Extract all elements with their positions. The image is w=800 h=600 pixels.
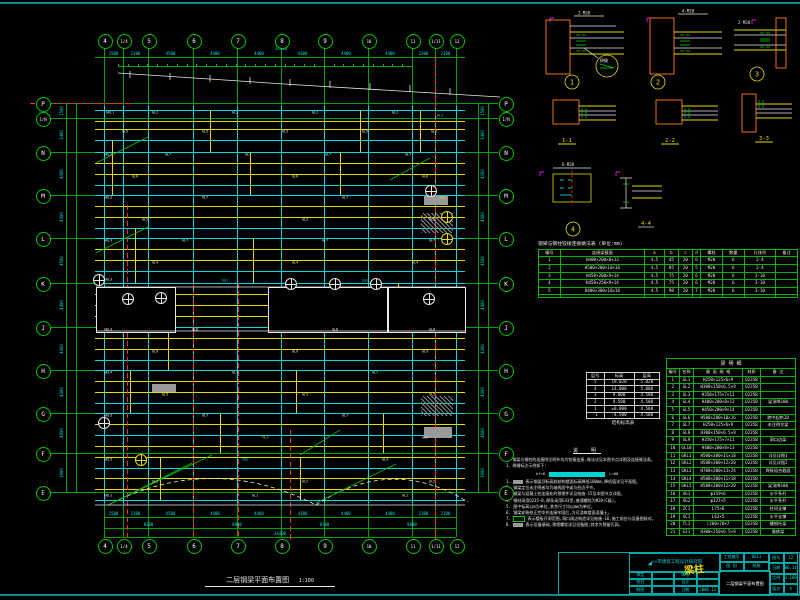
beam-label: GKL2	[104, 196, 112, 200]
titleblock-cell: 图号	[769, 553, 784, 563]
table-cell: 17	[667, 498, 680, 506]
dimension-tick	[206, 64, 207, 67]
column-header: 层高	[634, 373, 659, 380]
titleblock-cell: 日期	[674, 586, 697, 594]
table-cell: 2-4	[744, 264, 776, 272]
dimension-tick	[383, 64, 384, 67]
table-cell: GL9	[679, 437, 694, 445]
beam-label: GL6	[132, 175, 138, 179]
dimension-tick	[226, 64, 227, 67]
member-row: 21GJ1H300×150×6.5×9Q235B悬挑梁	[667, 528, 796, 536]
dimension-text: 4300	[481, 344, 485, 354]
beam-label: GL7	[342, 414, 348, 418]
beam-label: GKL3	[104, 278, 112, 282]
table-cell	[761, 407, 796, 415]
axis-line-horizontal	[50, 453, 498, 454]
titleblock-row: 图 别结施	[719, 562, 769, 571]
company-cell: ◢ ××市建筑工程设计研究院	[629, 553, 721, 573]
dimension-text: 4400	[254, 512, 264, 516]
connection-row	[539, 295, 798, 298]
equipment-pad	[152, 384, 176, 392]
titleblock-row: 审定审核	[629, 571, 719, 579]
table-cell: 6	[692, 272, 700, 280]
table-cell: GL2	[679, 384, 694, 392]
table-cell: Q235B	[742, 475, 760, 483]
titleblock-row: 校对设计	[629, 579, 719, 587]
grid-bubble: 6	[187, 34, 202, 49]
grid-bubble: N	[499, 146, 514, 161]
table-cell: 6	[667, 414, 680, 422]
beam-label: TL1	[262, 436, 268, 440]
table-cell: φ127×5	[694, 498, 743, 506]
table-cell: 焊接组合截面	[761, 467, 796, 475]
table-cell	[776, 257, 798, 265]
beam-label: GL9	[292, 350, 298, 354]
symbol-cross	[141, 455, 142, 465]
dimension-tick	[245, 64, 246, 67]
table-cell	[701, 295, 723, 298]
dimension-text: 1500	[109, 512, 119, 516]
grid-bubble: 10	[362, 539, 377, 554]
dimension-tick	[167, 64, 168, 67]
table-cell: Q235B	[742, 521, 760, 529]
grid-bubble: F	[499, 447, 514, 462]
level-row: 24.5004.500	[587, 399, 660, 406]
beam-label: GL5	[429, 393, 435, 397]
table-cell: 1	[667, 376, 680, 384]
beam-label: GL8	[192, 328, 198, 332]
beam-line	[95, 121, 465, 122]
titleblock-cell: 结施	[744, 562, 769, 571]
titleblock-right-cells: 图号12日期06.11比例1:100版次A	[769, 553, 798, 594]
beam-line	[95, 338, 465, 339]
dimension-line	[66, 103, 67, 492]
table-cell: 75	[664, 280, 678, 288]
grid-bubble: G	[36, 407, 51, 422]
beam-line-vertical	[253, 238, 254, 283]
member-table-block: 梁 明 细 编号名称截 面 规 格材质备 注1GL1H250×125×6×9Q2…	[666, 358, 796, 536]
dimension-text: 4400	[481, 300, 485, 310]
beam-label: GKL1	[106, 111, 114, 115]
column-header: 螺栓	[701, 249, 723, 257]
note-intro-line: 2、焊缝标注示例如下:	[506, 463, 668, 469]
dimension-text: 4400	[341, 512, 351, 516]
table-cell: 3-10	[744, 280, 776, 288]
beam-line	[95, 500, 465, 501]
beam-line-vertical	[135, 228, 136, 283]
hatch-zone	[421, 396, 453, 416]
drain-symbol	[425, 185, 437, 197]
dimension-text: 4300	[298, 52, 308, 56]
beam-line	[95, 349, 465, 350]
table-cell: 45	[664, 257, 678, 265]
beam-label: GL2	[232, 111, 238, 115]
dimension-text: 1500	[60, 106, 64, 116]
table-cell: H588×300×12×20	[694, 483, 743, 491]
beam-label: GL4	[292, 261, 298, 265]
table-cell: 2	[667, 384, 680, 392]
table-cell: Q235B	[742, 498, 760, 506]
table-cell: 8	[667, 429, 680, 437]
table-cell: 13	[667, 467, 680, 475]
drain-symbol	[122, 293, 134, 305]
table-cell: 5	[539, 287, 561, 295]
table-cell: Q235B	[742, 483, 760, 491]
beam-label: XG1	[222, 279, 228, 283]
beam-label: GL5	[429, 218, 435, 222]
dimension-line	[76, 103, 77, 492]
notes-block: 说 明 1、钢梁与钢柱的连接除注明外均为铰接连接,做法详见本图节点详图及连接做法…	[506, 448, 668, 529]
beam-label: GL2	[152, 480, 158, 484]
grid-bubble: K	[499, 277, 514, 292]
titleblock-cell: 06.11	[784, 563, 799, 573]
level-row: -1-4.5004.500	[587, 412, 660, 419]
dimension-text: 4400	[254, 52, 264, 56]
dimension-text: 4300	[60, 387, 64, 397]
table-cell	[776, 272, 798, 280]
expansion-joint-axis	[238, 283, 239, 540]
beam-label: GL7	[342, 196, 348, 200]
grid-bubble: 8	[275, 34, 290, 49]
table-cell: H400×200×8×13	[694, 399, 743, 407]
table-cell: 90	[664, 287, 678, 295]
dimension-text: 34400	[274, 532, 286, 536]
drain-symbol	[423, 293, 435, 305]
plan-title-text: 二层钢梁平面布置图	[226, 576, 289, 584]
dimension-tick	[265, 64, 266, 67]
table-cell: M20	[701, 264, 723, 272]
dimension-text: 1500	[481, 106, 485, 116]
dimension-tick	[363, 64, 364, 67]
table-cell: 21	[667, 528, 680, 536]
grid-bubble: 1/11	[429, 34, 444, 49]
beam-line	[95, 195, 465, 196]
member-row: 20TL1[200×70×7Q235B槽钢托梁	[667, 521, 796, 529]
beam-label: GKL5	[104, 414, 112, 418]
grid-bubble: 7	[231, 539, 246, 554]
dimension-text: 4300	[298, 512, 308, 516]
dimension-text: 1500	[109, 52, 119, 56]
beam-line	[95, 260, 465, 261]
table-cell: 20	[678, 264, 692, 272]
table-cell: XG2	[679, 498, 694, 506]
beam-label: GL7	[202, 196, 208, 200]
dimension-text: 4400	[385, 52, 395, 56]
dimension-tick	[353, 64, 354, 67]
titleblock-cell: 2006.11	[697, 586, 720, 594]
titleblock-cell: A	[784, 584, 799, 594]
symbol-cross	[447, 212, 448, 222]
beam-line	[95, 174, 465, 175]
beam-label: GL2	[152, 111, 158, 115]
table-cell: 水平支撑	[761, 513, 796, 521]
beam-label: GL7	[405, 153, 411, 157]
table-cell: 6	[722, 264, 744, 272]
dimension-line	[488, 103, 489, 492]
table-cell: L75×6	[694, 505, 743, 513]
grid-bubble: 1/11	[429, 539, 444, 554]
plan-title: 二层钢梁平面布置图 1:100	[205, 567, 335, 587]
table-cell: GKL3	[679, 467, 694, 475]
table-cell: 6	[692, 257, 700, 265]
table-cell: Q235B	[742, 467, 760, 475]
symbol-cross	[99, 275, 100, 285]
table-cell: H400×200×8×13	[694, 445, 743, 453]
symbol-cross	[335, 279, 336, 289]
table-cell: 5.020	[634, 379, 659, 386]
titleblock-row: 比例1:100	[769, 574, 798, 584]
table-cell: GL8	[679, 429, 694, 437]
table-cell: 详见详图2	[761, 460, 796, 468]
beam-line	[95, 478, 465, 479]
dimension-text: 3400	[60, 130, 64, 140]
table-cell: Q235B	[742, 528, 760, 536]
grid-bubble: 12	[450, 34, 465, 49]
table-cell: Q235B	[742, 452, 760, 460]
column-header: b	[664, 249, 678, 257]
beam-label: GL7	[232, 371, 238, 375]
grid-bubble: 12	[450, 539, 465, 554]
beam-label: GL6	[422, 175, 428, 179]
table-cell: 16	[667, 490, 680, 498]
table-cell: Q235B	[742, 460, 760, 468]
table-cell: 5	[587, 379, 605, 386]
beam-line-vertical	[250, 152, 251, 195]
grid-bubble: F	[36, 447, 51, 462]
notes-header: 说 明	[506, 448, 668, 456]
titleblock-row: 版次A	[769, 584, 798, 594]
table-cell: Q235B	[742, 513, 760, 521]
symbol-cross	[376, 279, 377, 289]
table-cell	[692, 295, 700, 298]
dimension-tick	[128, 64, 129, 67]
dimension-text: 4400	[385, 512, 395, 516]
beam-label: GL7	[322, 239, 328, 243]
table-cell: Q235B	[742, 445, 760, 453]
beam-line	[95, 424, 465, 425]
beam-label: GL3	[431, 130, 437, 134]
beam-label: GL5	[302, 218, 308, 222]
titleblock-row: 工程编号0611	[719, 553, 769, 562]
dimension-tick	[314, 64, 315, 67]
dimension-tick	[157, 64, 158, 67]
column-header: 截 面 规 格	[694, 369, 743, 377]
table-cell	[776, 287, 798, 295]
titleblock-cell: 12	[784, 553, 799, 563]
table-cell: 20	[678, 257, 692, 265]
table-cell: [200×70×7	[694, 521, 743, 529]
beam-line	[95, 446, 465, 447]
table-cell	[761, 391, 796, 399]
beam-line-vertical	[340, 152, 341, 195]
grid-bubble: N	[36, 146, 51, 161]
beam-label: GL7	[165, 153, 171, 157]
grid-bubble: P	[499, 97, 514, 112]
table-cell: 柱间支撑	[761, 505, 796, 513]
dimension-text: 4300	[481, 212, 485, 222]
title-block: ◢ ××市建筑工程设计研究院 审定审核校对设计制图日期2006.11 工程编号0…	[558, 552, 800, 595]
beam-label: GL6	[292, 175, 298, 179]
table-cell: 1	[587, 406, 605, 413]
table-cell	[744, 295, 776, 298]
symbol-cross	[161, 293, 162, 303]
axis-line-horizontal	[50, 118, 498, 119]
beam-label: XG2	[242, 458, 248, 462]
grid-bubble: 5	[142, 539, 157, 554]
connection-row: 5H400×300×10×164.590207M2063-10	[539, 287, 798, 295]
table-cell	[761, 376, 796, 384]
table-cell: 梁顶降100	[761, 483, 796, 491]
symbol-cross	[447, 234, 448, 244]
table-cell	[560, 295, 644, 298]
table-cell: 4.500	[634, 406, 659, 413]
dimension-text: 4500	[166, 512, 176, 516]
table-cell: M20	[701, 257, 723, 265]
beam-line	[95, 271, 465, 272]
level-table-block: 层号标高层高519.0205.020414.0005.00039.0004.50…	[586, 372, 660, 426]
dimension-tick	[343, 64, 344, 67]
table-cell: 14	[667, 475, 680, 483]
titleblock-cell	[652, 571, 675, 579]
beam-label: GL5	[202, 130, 208, 134]
dimension-text: 4400	[60, 300, 64, 310]
connection-row: 2H500×200×10×164.585205M2062-4	[539, 264, 798, 272]
titleblock-cell: 日期	[769, 563, 784, 573]
beam-line	[95, 403, 465, 404]
table-cell: 3-10	[744, 287, 776, 295]
level-row: 519.0205.020	[587, 379, 660, 386]
grid-bubble: 1/4	[117, 34, 132, 49]
column-header: 连接梁截面	[560, 249, 644, 257]
table-cell: 18	[667, 505, 680, 513]
grid-bubble: E	[36, 486, 51, 501]
member-row: 6GL6H500×200×10×16Q235B跨中起拱20	[667, 414, 796, 422]
table-cell: GL6	[679, 414, 694, 422]
table-cell: Q235B	[742, 429, 760, 437]
expansion-joint-axis	[193, 283, 194, 540]
table-cell: 4.5	[644, 272, 664, 280]
dimension-tick	[216, 64, 217, 67]
grid-bubble: 8	[275, 539, 290, 554]
beam-line	[95, 249, 465, 250]
connection-table-title: 钢梁与钢柱铰接连接做法表 (单位:mm)	[538, 242, 798, 248]
grid-bubble: 10	[362, 34, 377, 49]
approval-stamp: 梁柱	[683, 560, 704, 577]
titleblock-cell: 设计	[674, 579, 697, 587]
table-cell: 槽钢托梁	[761, 521, 796, 529]
table-cell: 洞口边梁	[761, 437, 796, 445]
member-row: 3GL3H350×175×7×11Q235B	[667, 391, 796, 399]
beam-line	[95, 435, 465, 436]
symbol-cross	[104, 418, 105, 428]
table-cell: Q235B	[742, 505, 760, 513]
drain-symbol	[285, 278, 297, 290]
dimension-text: 4300	[60, 212, 64, 222]
member-row: 12GKL2H588×300×12×20Q235B详见详图2	[667, 460, 796, 468]
table-cell: 4.5	[644, 280, 664, 288]
dimension-text: 2100	[441, 512, 451, 516]
table-cell: 10	[667, 445, 680, 453]
dimension-tick	[255, 64, 256, 67]
titleblock-cell	[697, 579, 720, 587]
table-cell: 19	[667, 513, 680, 521]
signature-grid: 审定审核校对设计制图日期2006.11	[629, 571, 719, 594]
grid-bubble: G	[499, 407, 514, 422]
titleblock-row: 制图日期2006.11	[629, 586, 719, 594]
table-cell: H250×125×6×9	[694, 422, 743, 430]
table-cell: 4.500	[634, 392, 659, 399]
grid-bubble: 1/N	[36, 112, 51, 127]
beam-label: GL5	[162, 393, 168, 397]
table-cell: H300×150×6.5×9	[694, 429, 743, 437]
column-header: 编号	[539, 249, 561, 257]
beam-label: GL5	[142, 218, 148, 222]
table-cell	[678, 295, 692, 298]
beam-line-vertical	[220, 413, 221, 453]
beam-label: GL8	[429, 328, 435, 332]
table-cell: M20	[701, 287, 723, 295]
table-cell: Q235B	[742, 384, 760, 392]
grid-bubble: 4	[98, 34, 113, 49]
column-header: 孔排列	[744, 249, 776, 257]
table-cell: GL1	[679, 376, 694, 384]
beam-label: GL4	[412, 261, 418, 265]
dimension-tick	[285, 64, 286, 67]
beam-label: GL2	[302, 480, 308, 484]
drain-symbol	[135, 454, 147, 466]
dimension-text: 4500	[166, 52, 176, 56]
table-cell: H500×300×11×18	[694, 452, 743, 460]
dimension-text: 2100	[131, 52, 141, 56]
table-cell: 3	[539, 272, 561, 280]
dimension-tick	[334, 64, 335, 67]
table-cell: 6	[722, 280, 744, 288]
titleblock-cell: 0611	[744, 553, 769, 562]
table-cell: 4.5	[644, 287, 664, 295]
beam-label: GL7	[325, 153, 331, 157]
beam-label: GJ1	[422, 436, 428, 440]
member-row: 7GL7H250×125×6×9Q235B未注明次梁	[667, 422, 796, 430]
weld-label-right: L=60	[609, 471, 618, 477]
titleblock-cell: 工程编号	[719, 553, 744, 562]
grid-bubble: 9	[318, 539, 333, 554]
dimension-text: 4300	[60, 169, 64, 179]
beam-label: GL9	[152, 350, 158, 354]
beam-line-vertical	[112, 140, 113, 195]
beam-line	[95, 381, 465, 382]
beam-label: GL7	[245, 153, 251, 157]
table-cell: 4.5	[644, 264, 664, 272]
dimension-tick	[294, 64, 295, 67]
note-item: 8. 表示设备基础,预埋螺栓详见设备图;其余为预留孔洞。	[506, 522, 668, 528]
grid-bubble: 5	[142, 34, 157, 49]
member-row: 17XG2φ127×5Q235B水平系杆	[667, 498, 796, 506]
dimension-text: 2100	[441, 52, 451, 56]
drain-symbol	[155, 292, 167, 304]
beam-label: GL7	[182, 239, 188, 243]
beam-label: B1	[441, 196, 445, 200]
table-cell: GL3	[679, 391, 694, 399]
beam-label: GL5	[302, 393, 308, 397]
column-header: a	[644, 249, 664, 257]
beam-label: GKL4	[104, 328, 112, 332]
beam-line-vertical	[420, 110, 421, 152]
table-cell: SC1	[679, 513, 694, 521]
dimension-text: 4500	[481, 256, 485, 266]
beam-label: GL2	[312, 111, 318, 115]
table-cell: 悬挑梁	[761, 528, 796, 536]
grid-bubble: 11	[406, 34, 421, 49]
